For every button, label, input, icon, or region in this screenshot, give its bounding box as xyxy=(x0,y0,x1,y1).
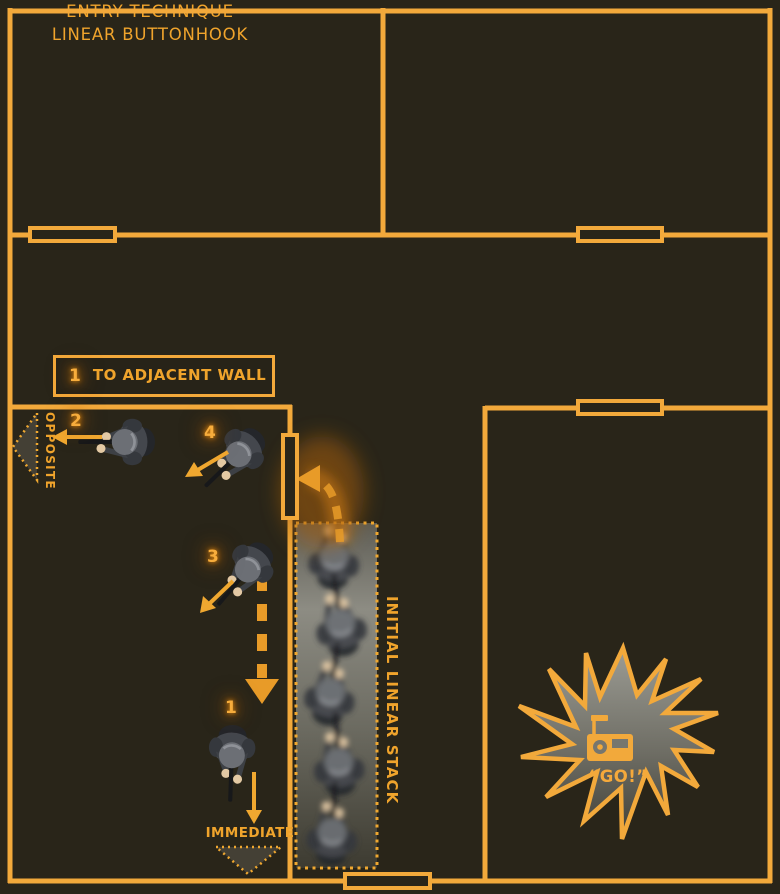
operator-1-arrowhead xyxy=(246,810,262,824)
operator-4-number: 4 xyxy=(204,424,216,444)
go-callout xyxy=(519,648,718,839)
door-bottom-right-room xyxy=(578,401,662,414)
immediate-direction-triangle xyxy=(216,847,281,874)
door-top-left-room xyxy=(30,228,115,241)
initial-stack-box xyxy=(296,504,377,868)
opposite-label: OPPOSITE xyxy=(42,412,56,490)
opposite-direction-triangle xyxy=(13,413,37,480)
go-label: “GO!” xyxy=(575,768,661,787)
operator-3-number: 3 xyxy=(207,548,219,568)
legend-operator-number: 1 xyxy=(69,366,81,386)
operator-1-number: 1 xyxy=(225,699,237,719)
legend-box: 1 TO ADJACENT WALL xyxy=(53,355,275,397)
operator-1-figure xyxy=(207,724,256,802)
operator-2-number: 2 xyxy=(70,412,82,432)
initial-stack-label: INITIAL LINEAR STACK xyxy=(383,596,400,804)
legend-label: TO ADJACENT WALL xyxy=(93,367,266,384)
immediate-label: IMMEDIATE xyxy=(204,826,296,842)
door-corridor-entry xyxy=(283,435,297,518)
door-top-right-room xyxy=(578,228,662,241)
tactical-entry-diagram: ENTRY TECHNIQUE LINEAR BUTTONHOOK 1 TO A… xyxy=(0,0,780,894)
operator-2-figure xyxy=(78,419,155,465)
door-bottom-entry xyxy=(345,874,430,888)
operator-4-figure xyxy=(189,417,276,504)
